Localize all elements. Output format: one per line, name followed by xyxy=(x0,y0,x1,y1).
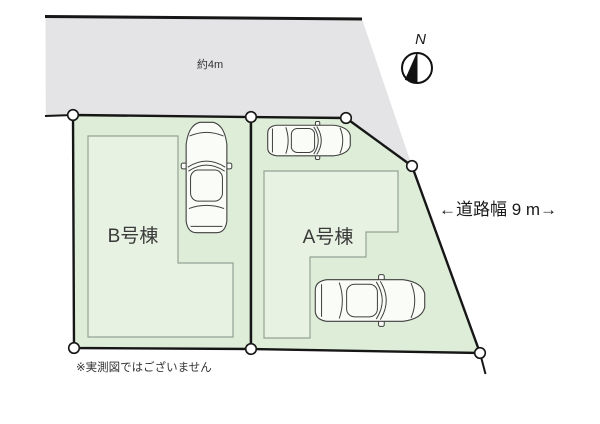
boundary-marker xyxy=(407,161,418,172)
lot-a-label: A号棟 xyxy=(303,226,354,248)
road-width-label: 約4m xyxy=(197,57,223,71)
boundary-marker xyxy=(69,343,80,354)
car-a-bottom-icon xyxy=(315,275,424,327)
boundary-marker xyxy=(475,348,486,359)
north-compass-icon: N xyxy=(402,31,432,83)
car-a-top-icon xyxy=(268,122,351,160)
site-plan: N 約4m B号棟 A号棟 ←道路幅 9 m→ ※実測図ではございません xyxy=(0,0,600,424)
lot-b-label: B号棟 xyxy=(108,225,159,247)
boundary-marker xyxy=(246,112,257,123)
site-plan-canvas: N 約4m B号棟 A号棟 ←道路幅 9 m→ ※実測図ではございません xyxy=(0,0,600,424)
car-b-icon xyxy=(181,122,232,232)
compass-north-label: N xyxy=(415,31,426,48)
boundary-marker xyxy=(341,113,352,124)
road-width-note: ←道路幅 9 m→ xyxy=(439,200,557,219)
boundary-marker xyxy=(68,110,79,121)
disclaimer-note: ※実測図ではございません xyxy=(76,360,212,374)
boundary-marker xyxy=(246,344,257,355)
